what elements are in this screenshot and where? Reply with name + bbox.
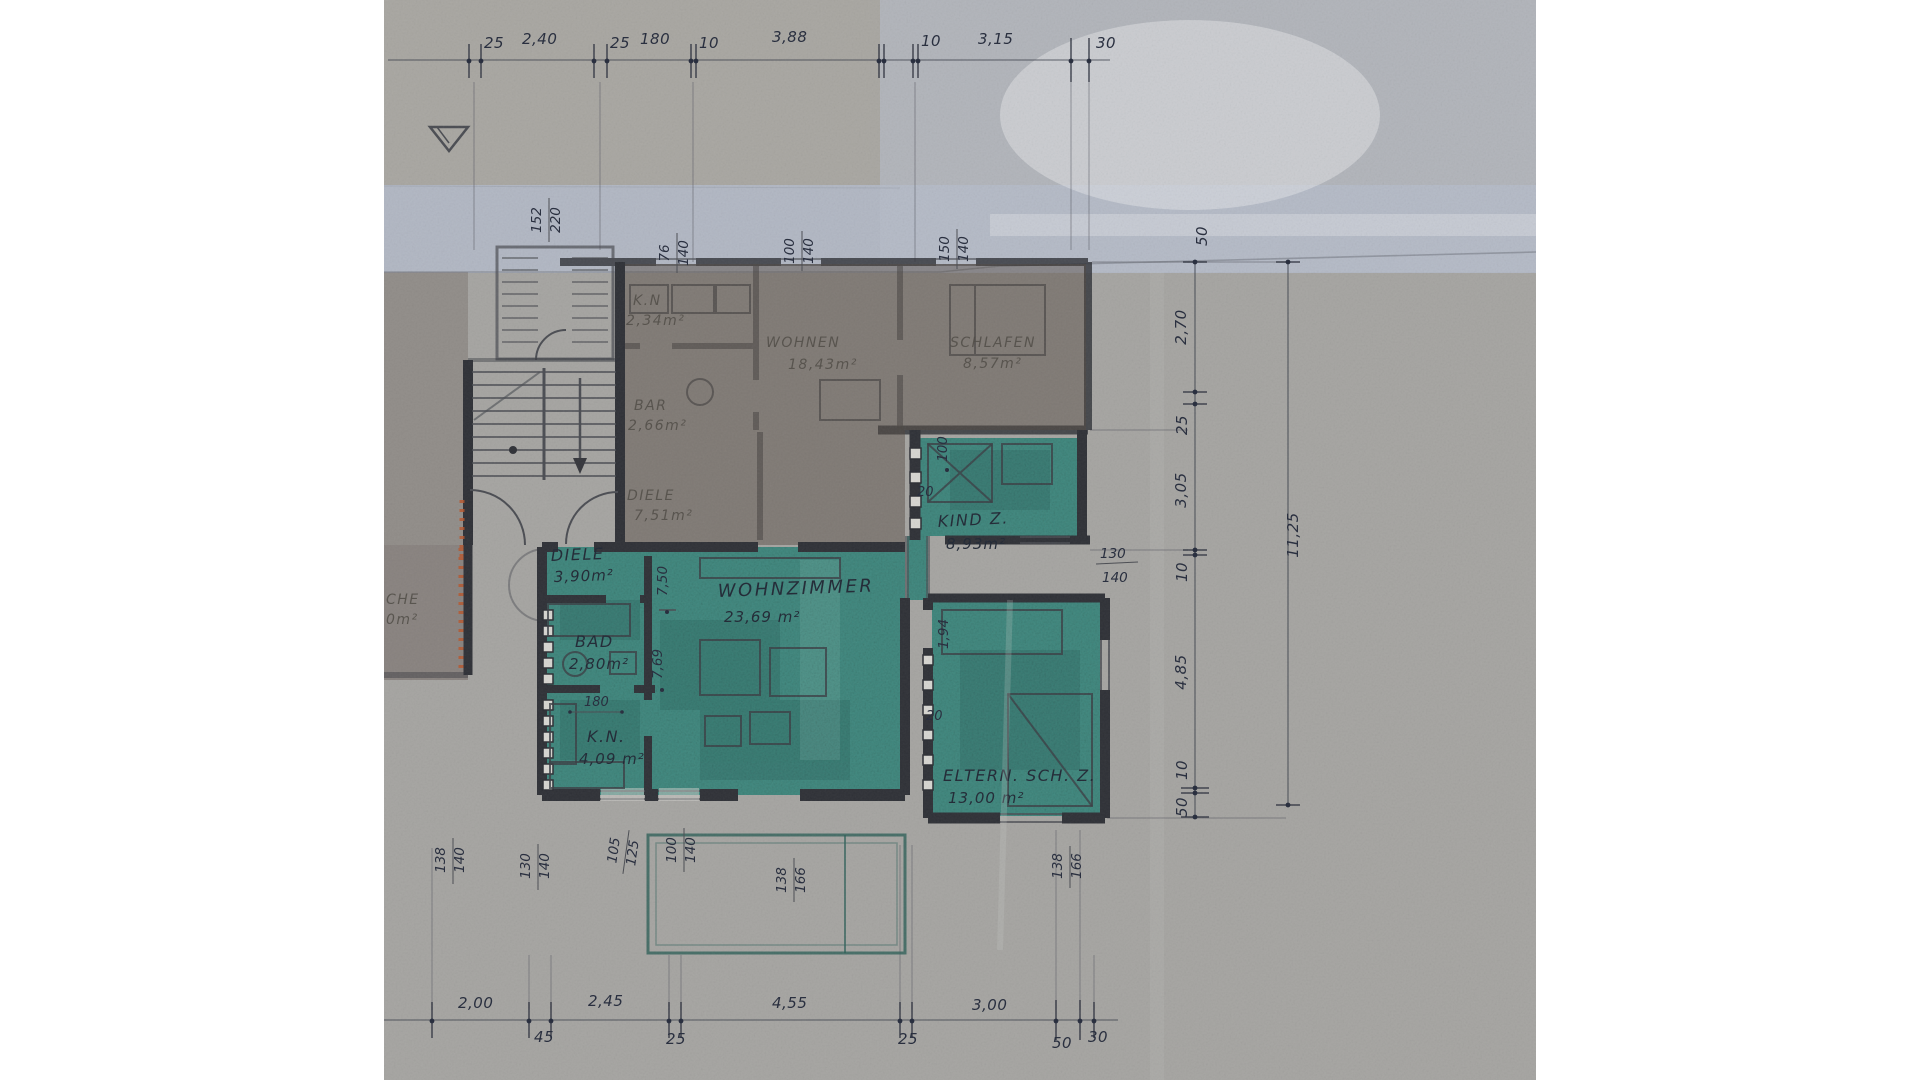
photo-grain (384, 0, 1536, 1080)
floor-plan-drawing: K.N 2,34m² WOHNEN 18,43m² SCHLAFEN 8,57m… (384, 0, 1536, 1080)
screenshot: K.N 2,34m² WOHNEN 18,43m² SCHLAFEN 8,57m… (0, 0, 1920, 1080)
floor-plan-photo: K.N 2,34m² WOHNEN 18,43m² SCHLAFEN 8,57m… (384, 0, 1536, 1080)
